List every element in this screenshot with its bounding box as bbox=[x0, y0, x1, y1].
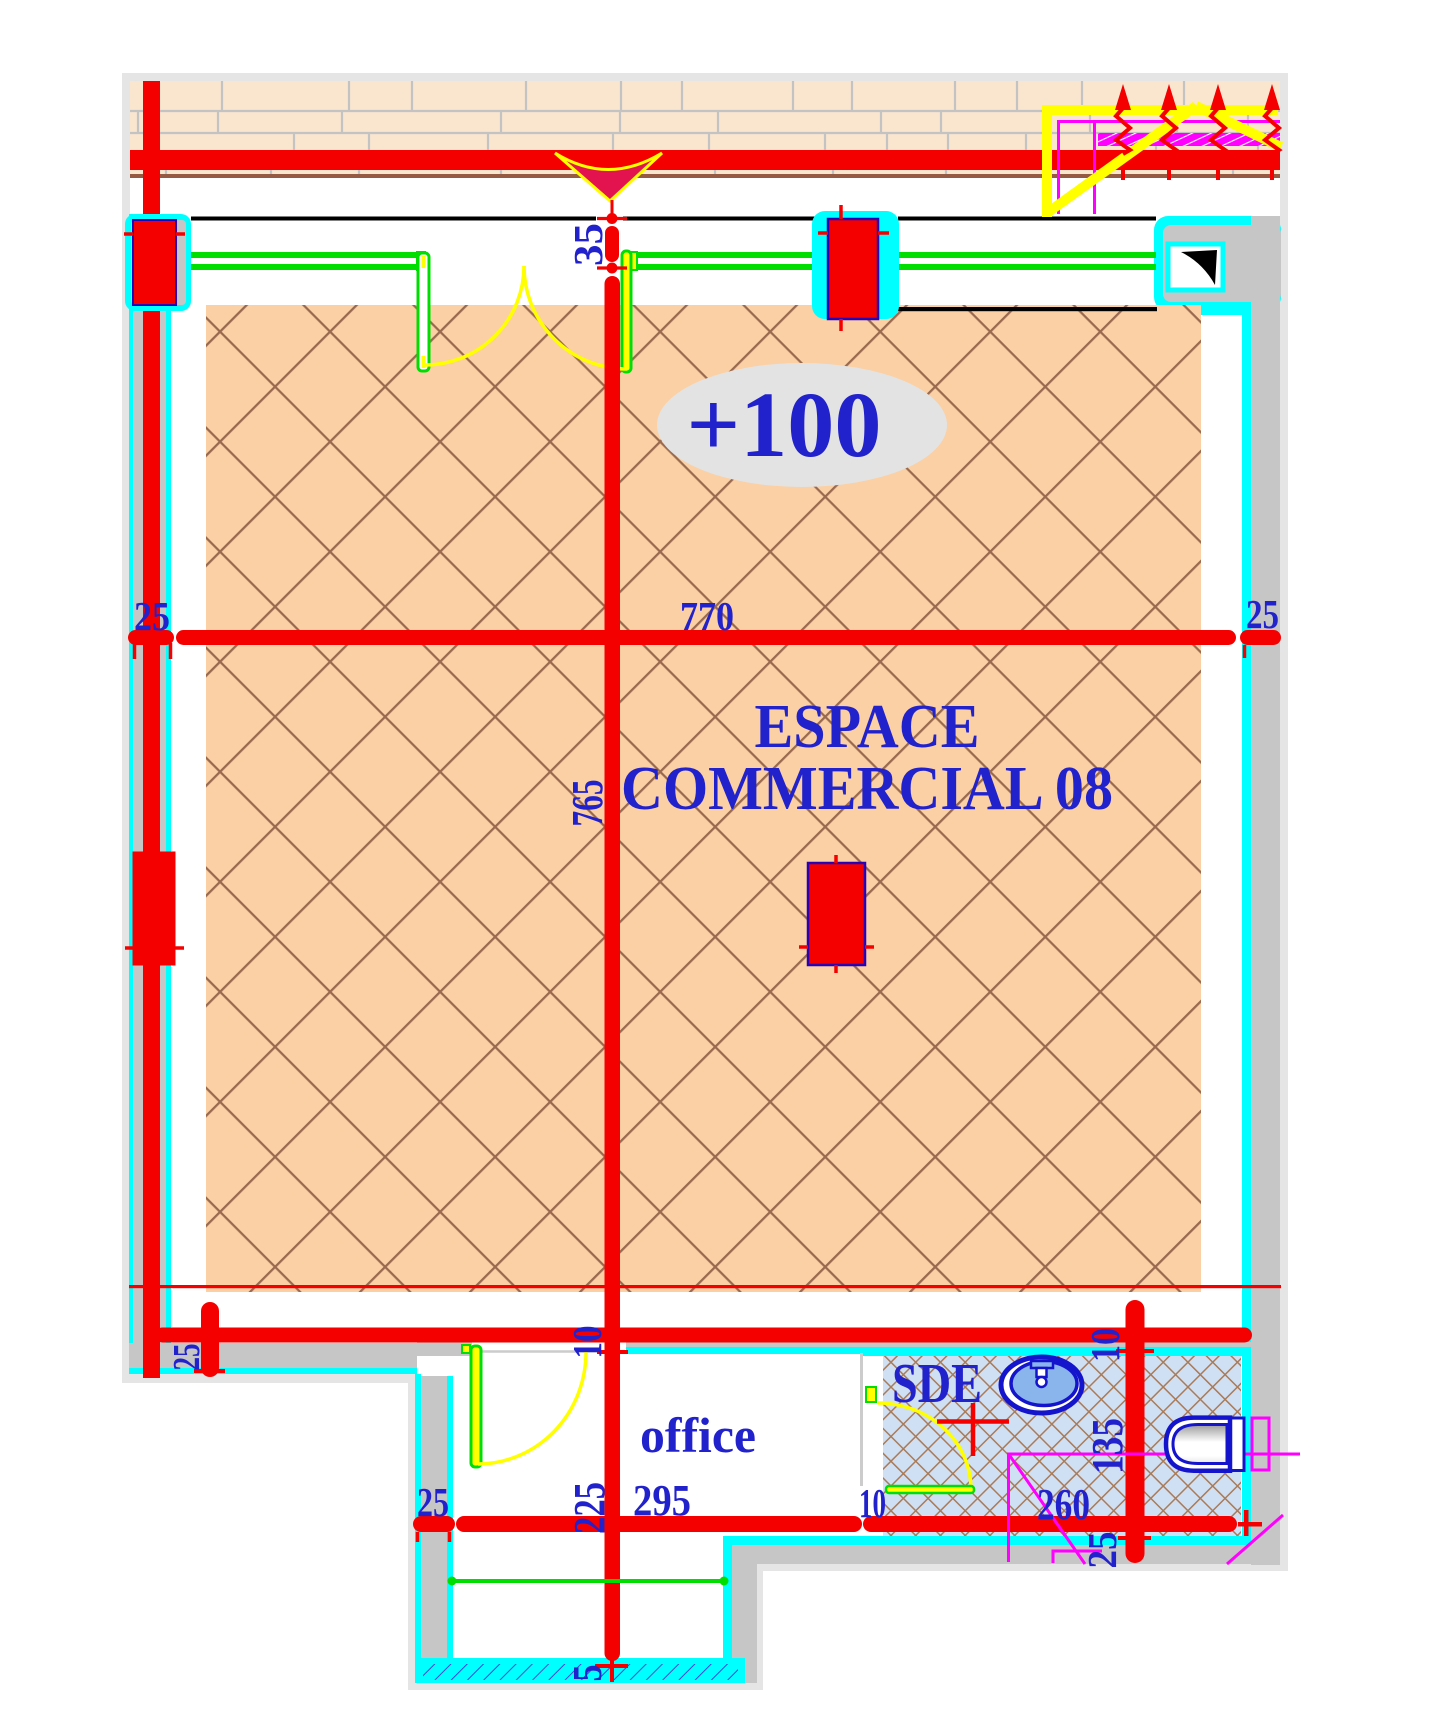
svg-text:office: office bbox=[640, 1407, 756, 1463]
svg-text:ESPACE: ESPACE bbox=[755, 693, 980, 761]
svg-text:765: 765 bbox=[563, 780, 612, 827]
svg-text:260: 260 bbox=[1037, 1480, 1090, 1529]
svg-text:770: 770 bbox=[680, 593, 734, 639]
svg-text:5: 5 bbox=[564, 1665, 610, 1682]
svg-text:135: 135 bbox=[1083, 1418, 1132, 1474]
svg-text:25: 25 bbox=[1246, 591, 1279, 637]
svg-text:+100: +100 bbox=[687, 374, 882, 477]
svg-text:225: 225 bbox=[565, 1482, 614, 1534]
svg-text:10: 10 bbox=[564, 1326, 610, 1359]
svg-text:35: 35 bbox=[565, 223, 611, 266]
svg-text:25: 25 bbox=[166, 1344, 208, 1371]
svg-text:25: 25 bbox=[417, 1479, 449, 1525]
svg-text:25: 25 bbox=[134, 593, 170, 639]
svg-text:SDE: SDE bbox=[892, 1353, 982, 1415]
svg-text:10: 10 bbox=[1082, 1328, 1128, 1362]
svg-text:COMMERCIAL 08: COMMERCIAL 08 bbox=[621, 755, 1113, 823]
svg-text:25: 25 bbox=[1079, 1532, 1125, 1569]
svg-text:10: 10 bbox=[859, 1480, 886, 1526]
svg-text:295: 295 bbox=[633, 1476, 691, 1525]
